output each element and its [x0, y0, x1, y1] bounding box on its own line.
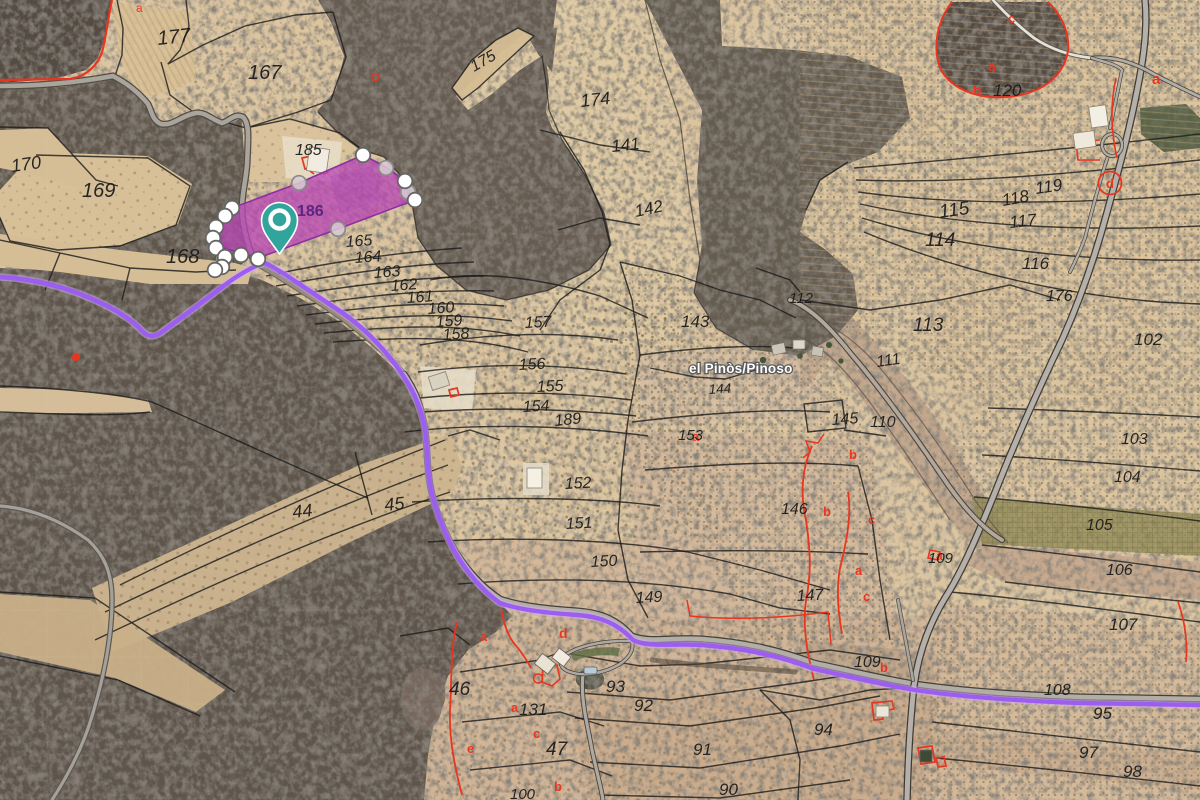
svg-text:106: 106 [1106, 562, 1133, 579]
svg-text:a: a [136, 1, 143, 15]
svg-text:a: a [988, 58, 996, 74]
svg-text:143: 143 [681, 312, 710, 331]
svg-text:113: 113 [913, 315, 944, 336]
svg-text:120: 120 [993, 81, 1022, 100]
svg-text:189: 189 [554, 410, 582, 430]
svg-text:b: b [849, 447, 857, 462]
svg-text:105: 105 [1086, 517, 1113, 534]
svg-text:90: 90 [719, 780, 738, 799]
svg-text:d: d [559, 625, 568, 641]
svg-text:a: a [855, 563, 863, 578]
svg-text:117: 117 [1008, 210, 1037, 232]
svg-text:154: 154 [522, 398, 550, 416]
svg-text:144: 144 [708, 380, 732, 397]
svg-text:170: 170 [10, 152, 43, 176]
svg-text:185: 185 [295, 142, 322, 159]
svg-text:a: a [511, 700, 519, 715]
svg-text:b: b [973, 82, 982, 98]
svg-text:111: 111 [875, 351, 901, 371]
svg-text:107: 107 [1109, 615, 1138, 634]
svg-text:131: 131 [519, 700, 547, 719]
svg-text:103: 103 [1121, 431, 1148, 448]
svg-text:44: 44 [291, 500, 313, 522]
svg-text:149: 149 [635, 589, 663, 607]
svg-text:c: c [533, 726, 540, 741]
svg-text:108: 108 [1044, 682, 1071, 699]
svg-text:167: 167 [248, 62, 282, 84]
svg-text:45: 45 [383, 493, 406, 515]
svg-text:c: c [868, 512, 875, 527]
svg-text:119: 119 [1034, 175, 1064, 198]
svg-text:147: 147 [796, 587, 825, 605]
svg-text:97: 97 [1079, 743, 1098, 762]
svg-text:146: 146 [781, 501, 808, 518]
svg-text:169: 169 [82, 180, 115, 202]
svg-text:174: 174 [579, 88, 611, 111]
svg-text:153: 153 [678, 427, 704, 444]
svg-text:d: d [1106, 176, 1114, 191]
svg-text:c: c [863, 589, 870, 604]
svg-text:92: 92 [634, 696, 653, 715]
svg-text:109: 109 [928, 550, 954, 567]
svg-text:110: 110 [870, 414, 896, 431]
svg-text:100: 100 [510, 786, 536, 800]
svg-text:102: 102 [1134, 330, 1163, 349]
svg-text:177: 177 [156, 25, 192, 50]
svg-text:152: 152 [564, 475, 592, 493]
svg-text:47: 47 [546, 739, 569, 760]
svg-text:91: 91 [693, 740, 712, 759]
svg-text:141: 141 [610, 134, 640, 156]
svg-text:b: b [880, 660, 888, 675]
svg-text:el Pinòs/Pinoso: el Pinòs/Pinoso [689, 361, 793, 376]
svg-text:46: 46 [449, 679, 471, 700]
svg-text:116: 116 [1022, 254, 1050, 273]
svg-text:e: e [467, 741, 474, 756]
svg-text:157: 157 [524, 314, 553, 332]
svg-text:115: 115 [938, 198, 971, 223]
svg-text:145: 145 [831, 410, 859, 429]
svg-text:b: b [554, 779, 562, 794]
svg-text:186: 186 [297, 203, 324, 220]
svg-text:168: 168 [166, 246, 199, 268]
svg-text:150: 150 [590, 553, 618, 571]
svg-text:a: a [480, 629, 488, 644]
svg-text:c: c [1008, 11, 1015, 26]
svg-text:176: 176 [1046, 288, 1073, 305]
svg-text:156: 156 [518, 356, 546, 374]
svg-text:94: 94 [814, 720, 833, 739]
svg-text:a: a [1152, 71, 1161, 88]
svg-text:112: 112 [789, 290, 814, 307]
svg-text:114: 114 [925, 230, 955, 251]
svg-text:98: 98 [1123, 762, 1142, 781]
svg-text:b: b [823, 504, 831, 519]
svg-text:109: 109 [854, 654, 881, 671]
svg-text:151: 151 [565, 515, 593, 533]
svg-text:158: 158 [442, 325, 470, 344]
svg-text:155: 155 [536, 378, 564, 396]
svg-text:104: 104 [1114, 469, 1141, 486]
svg-text:93: 93 [606, 677, 625, 696]
